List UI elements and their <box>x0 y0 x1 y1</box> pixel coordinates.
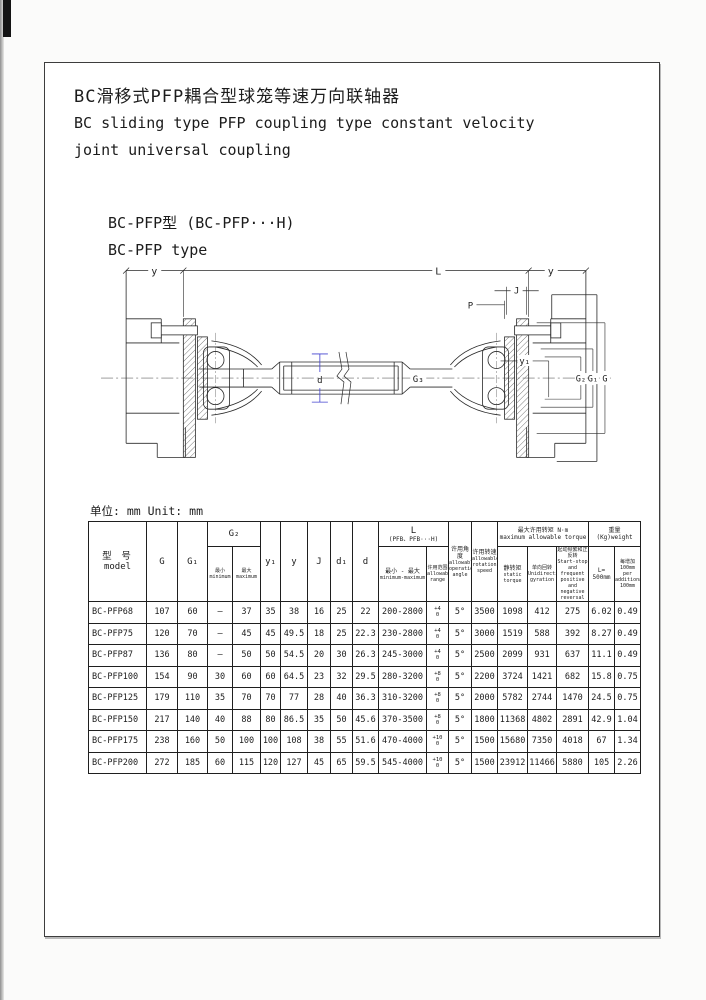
value-cell: +100 <box>427 752 449 774</box>
subcol-g2-max: 最大 maximum <box>233 547 261 602</box>
value-cell: 70 <box>178 623 208 645</box>
value-cell: 5880 <box>557 752 589 774</box>
value-cell: 59.5 <box>353 752 379 774</box>
value-cell: 5° <box>449 752 472 774</box>
table-row: BC-PFP8713680—505054.5203026.3245-3000+4… <box>89 645 641 667</box>
value-cell: 272 <box>147 752 178 774</box>
value-cell: 107 <box>147 602 178 624</box>
page-title-en-line2: joint universal coupling <box>74 137 535 164</box>
value-cell: 392 <box>557 623 589 645</box>
value-cell: 90 <box>178 666 208 688</box>
value-cell: 45 <box>233 623 261 645</box>
value-cell: 154 <box>147 666 178 688</box>
value-cell: +40 <box>427 602 449 624</box>
value-cell: 38 <box>308 731 331 753</box>
value-cell: 140 <box>178 709 208 731</box>
value-cell: 35 <box>261 602 281 624</box>
model-cell: BC-PFP100 <box>89 666 147 688</box>
table-row: BC-PFP17523816050100100108385551.6470-40… <box>89 731 641 753</box>
unit-label: 单位: mm Unit: mm <box>90 503 203 519</box>
value-cell: 11368 <box>498 709 528 731</box>
value-cell: 1519 <box>498 623 528 645</box>
col-header-g: G <box>147 522 178 602</box>
value-cell: 60 <box>178 602 208 624</box>
value-cell: 1500 <box>472 752 498 774</box>
col-header-angle: 许用角度 allowable operation angle <box>449 522 472 602</box>
value-cell: 2891 <box>557 709 589 731</box>
value-cell: 80 <box>178 645 208 667</box>
value-cell: 2.26 <box>615 752 641 774</box>
dim-label-P: P <box>468 301 474 311</box>
value-cell: 35 <box>308 709 331 731</box>
value-cell: 3500 <box>472 602 498 624</box>
value-cell: 6.02 <box>589 602 615 624</box>
value-cell: 55 <box>331 731 353 753</box>
value-cell: 160 <box>178 731 208 753</box>
value-cell: 0.75 <box>615 666 641 688</box>
value-cell: 20 <box>308 645 331 667</box>
value-cell: 5° <box>449 688 472 710</box>
value-cell: 310-3200 <box>379 688 427 710</box>
value-cell: 545-4000 <box>379 752 427 774</box>
value-cell: 23912 <box>498 752 528 774</box>
value-cell: 1098 <box>498 602 528 624</box>
value-cell: 931 <box>528 645 557 667</box>
table-row: BC-PFP6810760—373538162522200-2800+405°3… <box>89 602 641 624</box>
value-cell: 64.5 <box>281 666 308 688</box>
value-cell: 0.49 <box>615 602 641 624</box>
value-cell: 108 <box>281 731 308 753</box>
value-cell: 230-2800 <box>379 623 427 645</box>
col-header-j: J <box>308 522 331 602</box>
value-cell: 7350 <box>528 731 557 753</box>
value-cell: 1.34 <box>615 731 641 753</box>
value-cell: 127 <box>281 752 308 774</box>
value-cell: 3724 <box>498 666 528 688</box>
value-cell: 11466 <box>528 752 557 774</box>
value-cell: 35 <box>208 688 233 710</box>
value-cell: 5° <box>449 645 472 667</box>
model-cell: BC-PFP200 <box>89 752 147 774</box>
value-cell: 100 <box>261 731 281 753</box>
col-header-y: y <box>281 522 308 602</box>
value-cell: 0.49 <box>615 623 641 645</box>
spec-table: 型 号 model G G₁ G₂ y₁ y J d₁ d L (PFB、PFB… <box>88 521 641 774</box>
value-cell: 23 <box>308 666 331 688</box>
table-body: BC-PFP6810760—373538162522200-2800+405°3… <box>89 602 641 774</box>
title-block: BC滑移式PFP耦合型球笼等速万向联轴器 BC sliding type PFP… <box>74 84 535 164</box>
col-header-torque: 最大许用转矩 N·m maximum allowable torque <box>498 522 589 547</box>
value-cell: 1800 <box>472 709 498 731</box>
value-cell: 54.5 <box>281 645 308 667</box>
value-cell: 2200 <box>472 666 498 688</box>
value-cell: 5° <box>449 623 472 645</box>
col-header-model: 型 号 model <box>89 522 147 602</box>
col-header-speed: 许用转速 allowable rotation speed <box>472 522 498 602</box>
dim-label-y-right: y <box>548 267 554 278</box>
page-title-en-line1: BC sliding type PFP coupling type consta… <box>74 110 535 137</box>
value-cell: 86.5 <box>281 709 308 731</box>
coupling-cross-section-svg: y L y J P G₃ y₁ d G₂ G₁ G <box>95 256 617 472</box>
value-cell: 16 <box>308 602 331 624</box>
value-cell: 60 <box>233 666 261 688</box>
model-cell: BC-PFP125 <box>89 688 147 710</box>
scan-artifact-blob <box>3 0 11 37</box>
value-cell: 25 <box>331 602 353 624</box>
value-cell: 22 <box>353 602 379 624</box>
value-cell: 26.3 <box>353 645 379 667</box>
value-cell: 45 <box>308 752 331 774</box>
value-cell: 5° <box>449 731 472 753</box>
value-cell: 5782 <box>498 688 528 710</box>
value-cell: 42.9 <box>589 709 615 731</box>
value-cell: 88 <box>233 709 261 731</box>
value-cell: — <box>208 645 233 667</box>
value-cell: 45 <box>261 623 281 645</box>
value-cell: 49.5 <box>281 623 308 645</box>
value-cell: 18 <box>308 623 331 645</box>
subcol-l-allow: 许用范围 allowable range <box>427 547 449 602</box>
value-cell: +40 <box>427 623 449 645</box>
col-header-d: d <box>353 522 379 602</box>
model-type-line1: BC-PFP型 (BC-PFP···H) <box>108 210 295 237</box>
value-cell: 588 <box>528 623 557 645</box>
value-cell: 11.1 <box>589 645 615 667</box>
value-cell: 5° <box>449 602 472 624</box>
table-row: BC-PFP7512070—454549.5182522.3230-2800+4… <box>89 623 641 645</box>
table-row: BC-PFP15021714040888086.5355045.6370-350… <box>89 709 641 731</box>
value-cell: 24.5 <box>589 688 615 710</box>
value-cell: 115 <box>233 752 261 774</box>
col-header-d1: d₁ <box>331 522 353 602</box>
value-cell: 28 <box>308 688 331 710</box>
value-cell: 105 <box>589 752 615 774</box>
value-cell: — <box>208 623 233 645</box>
value-cell: 5° <box>449 666 472 688</box>
subcol-g2-min: 最小 minimum <box>208 547 233 602</box>
value-cell: 80 <box>261 709 281 731</box>
subcol-unidirectional: 单向回转 Unidirectional gyration <box>528 547 557 602</box>
value-cell: 0.75 <box>615 688 641 710</box>
col-header-g2: G₂ <box>208 522 261 547</box>
col-header-L: L (PFB、PFB···H) <box>379 522 449 547</box>
value-cell: +40 <box>427 645 449 667</box>
technical-drawing: y L y J P G₃ y₁ d G₂ G₁ G <box>95 256 617 472</box>
value-cell: 15680 <box>498 731 528 753</box>
model-cell: BC-PFP150 <box>89 709 147 731</box>
col-header-y1: y₁ <box>261 522 281 602</box>
value-cell: 30 <box>208 666 233 688</box>
value-cell: +80 <box>427 709 449 731</box>
table-row: BC-PFP1001549030606064.5233229.5280-3200… <box>89 666 641 688</box>
value-cell: +80 <box>427 666 449 688</box>
value-cell: 217 <box>147 709 178 731</box>
value-cell: 40 <box>208 709 233 731</box>
subcol-static-torque: 静转矩 static torque <box>498 547 528 602</box>
dim-label-L: L <box>435 267 441 278</box>
value-cell: 1470 <box>557 688 589 710</box>
value-cell: 30 <box>331 645 353 667</box>
value-cell: 179 <box>147 688 178 710</box>
subcol-start-stop: 起动频繁和正反转 Start-stop and frequent positiv… <box>557 547 589 602</box>
dim-label-d: d <box>317 376 322 386</box>
scan-artifact-edge <box>0 0 4 1000</box>
value-cell: 22.3 <box>353 623 379 645</box>
dim-label-G3: G₃ <box>413 375 424 385</box>
value-cell: +80 <box>427 688 449 710</box>
value-cell: — <box>208 602 233 624</box>
value-cell: 3000 <box>472 623 498 645</box>
page-border <box>44 62 660 937</box>
col-header-weight: 重量 (Kg)weight <box>589 522 641 547</box>
value-cell: 77 <box>281 688 308 710</box>
value-cell: 45.6 <box>353 709 379 731</box>
value-cell: 36.3 <box>353 688 379 710</box>
value-cell: 1421 <box>528 666 557 688</box>
value-cell: 40 <box>331 688 353 710</box>
value-cell: 50 <box>208 731 233 753</box>
value-cell: 15.8 <box>589 666 615 688</box>
value-cell: 238 <box>147 731 178 753</box>
value-cell: 60 <box>261 666 281 688</box>
dim-label-G2: G₂ <box>576 375 586 385</box>
value-cell: 70 <box>233 688 261 710</box>
value-cell: 120 <box>261 752 281 774</box>
value-cell: 70 <box>261 688 281 710</box>
value-cell: 0.49 <box>615 645 641 667</box>
value-cell: 470-4000 <box>379 731 427 753</box>
value-cell: 67 <box>589 731 615 753</box>
value-cell: 50 <box>233 645 261 667</box>
subcol-weight-per100: 每增加 100mm per additional 100mm <box>615 547 641 602</box>
value-cell: 60 <box>208 752 233 774</box>
table-row: BC-PFP12517911035707077284036.3310-3200+… <box>89 688 641 710</box>
model-cell: BC-PFP75 <box>89 623 147 645</box>
value-cell: 2099 <box>498 645 528 667</box>
model-cell: BC-PFP87 <box>89 645 147 667</box>
value-cell: 38 <box>281 602 308 624</box>
value-cell: 32 <box>331 666 353 688</box>
value-cell: 50 <box>261 645 281 667</box>
value-cell: 280-3200 <box>379 666 427 688</box>
value-cell: 370-3500 <box>379 709 427 731</box>
value-cell: 120 <box>147 623 178 645</box>
dim-label-G: G <box>602 375 607 385</box>
subcol-l-range: 最小 - 最大 minimum-maximum <box>379 547 427 602</box>
value-cell: 637 <box>557 645 589 667</box>
value-cell: +100 <box>427 731 449 753</box>
value-cell: 29.5 <box>353 666 379 688</box>
dim-label-y-left: y <box>151 267 157 278</box>
value-cell: 200-2800 <box>379 602 427 624</box>
dim-label-G1: G₁ <box>588 375 598 385</box>
value-cell: 2000 <box>472 688 498 710</box>
value-cell: 25 <box>331 623 353 645</box>
value-cell: 65 <box>331 752 353 774</box>
model-cell: BC-PFP68 <box>89 602 147 624</box>
value-cell: 110 <box>178 688 208 710</box>
value-cell: 245-3000 <box>379 645 427 667</box>
value-cell: 2744 <box>528 688 557 710</box>
value-cell: 275 <box>557 602 589 624</box>
value-cell: 5° <box>449 709 472 731</box>
subcol-weight-500: L= 500mm <box>589 547 615 602</box>
value-cell: 682 <box>557 666 589 688</box>
value-cell: 4802 <box>528 709 557 731</box>
page-title-zh: BC滑移式PFP耦合型球笼等速万向联轴器 <box>74 84 535 110</box>
value-cell: 2500 <box>472 645 498 667</box>
value-cell: 1500 <box>472 731 498 753</box>
col-header-g1: G₁ <box>178 522 208 602</box>
dim-label-J: J <box>514 287 519 297</box>
value-cell: 4018 <box>557 731 589 753</box>
value-cell: 136 <box>147 645 178 667</box>
value-cell: 412 <box>528 602 557 624</box>
spec-table-wrap: 型 号 model G G₁ G₂ y₁ y J d₁ d L (PFB、PFB… <box>88 521 641 774</box>
value-cell: 37 <box>233 602 261 624</box>
value-cell: 100 <box>233 731 261 753</box>
value-cell: 51.6 <box>353 731 379 753</box>
value-cell: 1.04 <box>615 709 641 731</box>
model-cell: BC-PFP175 <box>89 731 147 753</box>
value-cell: 50 <box>331 709 353 731</box>
dim-label-y1: y₁ <box>519 357 530 367</box>
value-cell: 8.27 <box>589 623 615 645</box>
value-cell: 185 <box>178 752 208 774</box>
table-row: BC-PFP20027218560115120127456559.5545-40… <box>89 752 641 774</box>
